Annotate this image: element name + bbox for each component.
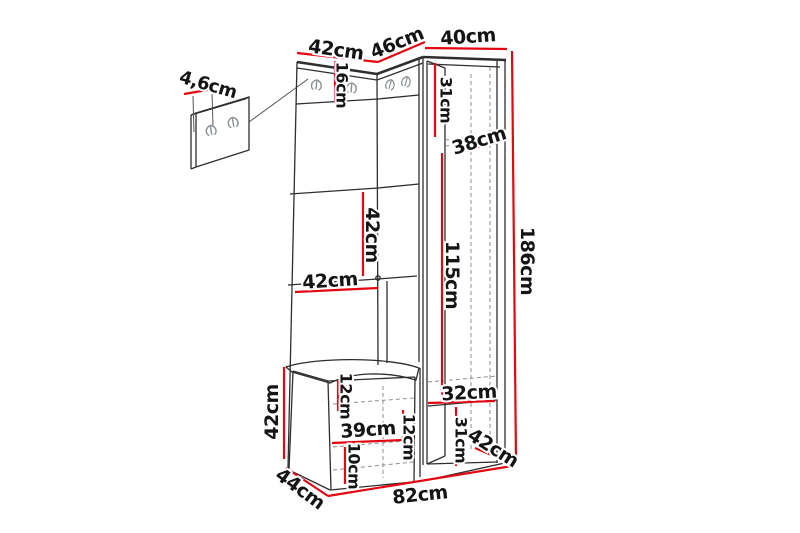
dim-top-corner-width: 46cm [367, 22, 427, 63]
coat-hook-icon [401, 76, 412, 87]
dim-lower-niche-depth: 32cm [441, 381, 498, 406]
dim-bench-height: 42cm [261, 384, 283, 440]
dim-top-left-width: 42cm [307, 35, 365, 65]
dim-shelf-width: 42cm [302, 268, 359, 294]
dim-seat-height: 12cm [337, 373, 356, 419]
wall-hook-panel [191, 97, 249, 169]
dim-upper-niche-height: 31cm [437, 77, 456, 123]
dim-total-height: 186cm [516, 227, 538, 295]
coat-hook-icon [227, 117, 238, 128]
dimension-labels: 42cm 46cm 40cm 4,6cm 16cm 31cm 38cm 42cm… [177, 22, 538, 514]
coat-hook-icon [385, 79, 396, 90]
diagram-canvas: 42cm 46cm 40cm 4,6cm 16cm 31cm 38cm 42cm… [0, 0, 800, 533]
dim-upper-niche-depth: 38cm [449, 122, 509, 159]
coat-hook-icon [205, 125, 216, 136]
dim-total-width: 82cm [391, 481, 449, 509]
dim-bench-depth: 44cm [271, 464, 329, 514]
furniture-dimension-diagram: 42cm 46cm 40cm 4,6cm 16cm 31cm 38cm 42cm… [0, 0, 800, 533]
dim-tall-niche-height: 115cm [441, 241, 463, 309]
dim-hook-panel-height: 16cm [333, 62, 352, 108]
dim-lower-right-depth: 42cm [464, 424, 523, 472]
dim-plinth-height: 10cm [345, 443, 364, 489]
dim-bench-inner-width: 39cm [340, 417, 397, 443]
dim-bench-inner-height: 12cm [400, 414, 419, 460]
dim-wall-panel-thickness: 4,6cm [177, 67, 239, 103]
dim-shelf-spacing: 42cm [361, 207, 383, 263]
coat-hook-icon [311, 80, 322, 90]
dim-top-right-depth: 40cm [440, 24, 497, 50]
